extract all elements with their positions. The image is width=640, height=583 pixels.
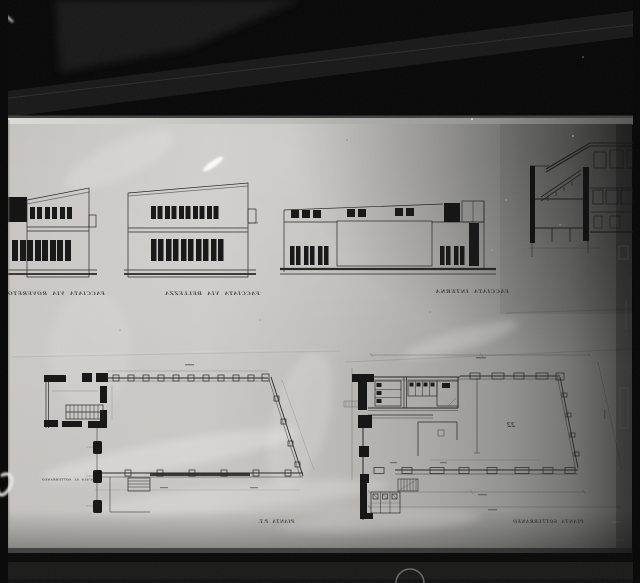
film-grain-overlay: [0, 0, 640, 583]
photo-canvas: [0, 0, 640, 583]
photograph-of-architectural-drawings: FACCIATA VIA ROVERETO FACCIATA VIA BELLE…: [0, 0, 640, 583]
